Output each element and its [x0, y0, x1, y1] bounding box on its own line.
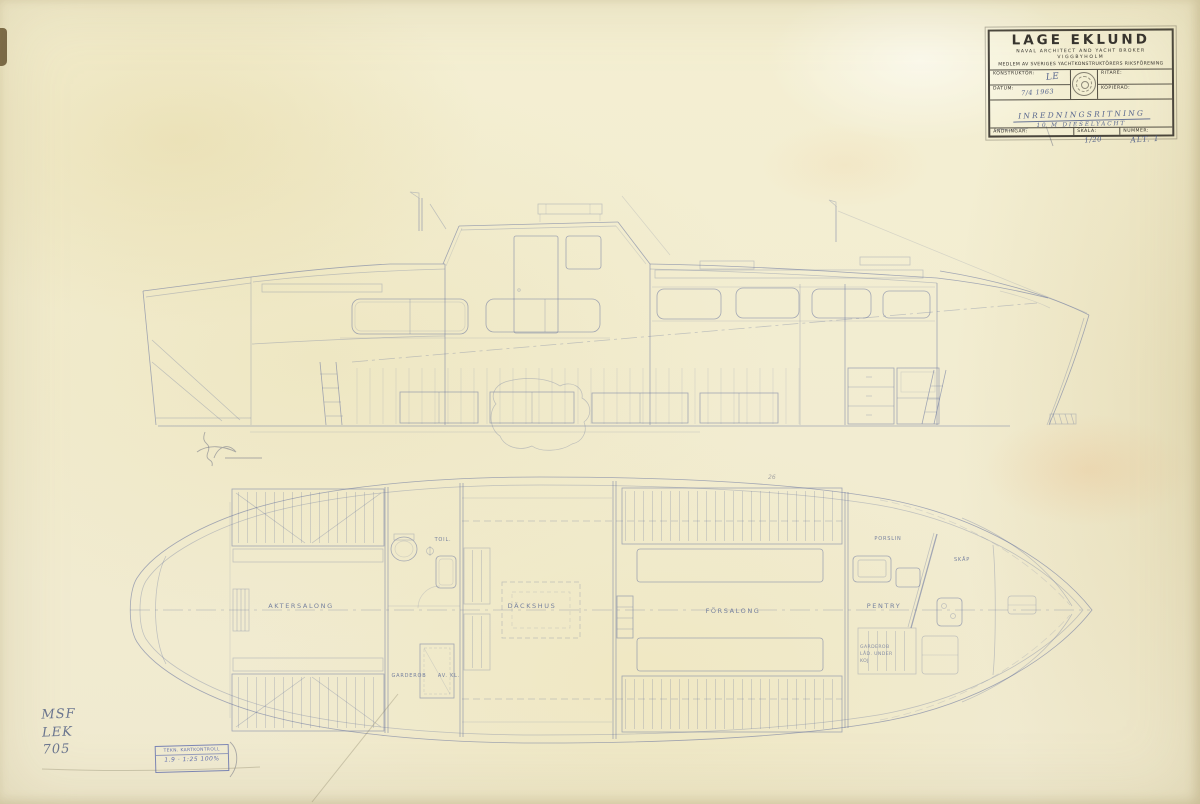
konstruktor-label: KONSTRUKTÖR:: [993, 71, 1035, 76]
membership-line: MEDLEM AV SVERIGES YACHTKONSTRUKTÖRERS R…: [990, 61, 1172, 67]
nummer-label: NUMMER:: [1123, 129, 1149, 134]
field-konstruktor: KONSTRUKTÖR: LE: [990, 70, 1070, 85]
plan-note-koj: GARDEROB LÅD. UNDER KOJ: [860, 645, 893, 666]
plan-note-line1: GARDEROB: [860, 645, 893, 652]
ritare-label: RITARE:: [1101, 71, 1122, 76]
fields-left-column: KONSTRUKTÖR: LE DATUM: 7/4 1963: [990, 70, 1071, 99]
plan-note-line2: LÅD. UNDER: [860, 652, 893, 659]
title-block-bottom-row: ÄNDRINGAR: SKALA: 1/20 NUMMER: ALT. 1: [990, 127, 1172, 135]
field-ritare: RITARE:: [1098, 69, 1172, 84]
company-location: VIGGBYHOLM: [990, 54, 1172, 60]
title-block-fields: KONSTRUKTÖR: LE DATUM: 7/4 1963 RITARE: …: [990, 69, 1172, 100]
plan-label-toil: TOIL.: [435, 537, 452, 543]
plan-label-forsalong: FÖRSALONG: [706, 607, 761, 615]
archive-pencil-notes: MSF LEK 705: [41, 705, 77, 759]
kopierad-label: KOPIERAD:: [1101, 86, 1130, 91]
field-kopierad: KOPIERAD:: [1098, 84, 1172, 98]
plan-label-porslin: PORSLIN: [874, 536, 901, 542]
field-nummer: NUMMER: ALT. 1: [1120, 127, 1172, 135]
association-seal-icon: [1072, 72, 1096, 96]
field-datum: DATUM: 7/4 1963: [990, 85, 1070, 99]
datum-value: 7/4 1963: [1021, 87, 1054, 97]
plan-view: [130, 477, 1092, 743]
fields-right-column: RITARE: KOPIERAD:: [1097, 69, 1172, 98]
plan-label-pentry: PENTRY: [867, 602, 902, 610]
field-andringar: ÄNDRINGAR:: [990, 128, 1074, 136]
drawing-title: INREDNINGSRITNING 10 M DIESELYACHT: [990, 99, 1172, 128]
plan-label-skap: SKÅP: [954, 557, 970, 563]
title-block: LAGE EKLUND NAVAL ARCHITECT AND YACHT BR…: [988, 28, 1175, 137]
scanned-blueprint-sheet: AKTERSALONG DÄCKSHUS FÖRSALONG PENTRY TO…: [0, 0, 1200, 804]
plan-label-garderob: GARDEROB: [391, 673, 426, 679]
fields-middle-column: [1071, 70, 1097, 99]
skala-label: SKALA:: [1077, 129, 1096, 134]
datum-label: DATUM:: [993, 87, 1014, 92]
plan-note-line3: KOJ: [860, 659, 893, 666]
plan-label-dackshus: DÄCKSHUS: [508, 602, 557, 610]
konstruktor-signature: LE: [1046, 71, 1061, 82]
company-name: LAGE EKLUND: [990, 32, 1172, 47]
field-skala: SKALA: 1/20: [1074, 127, 1120, 135]
andringar-label: ÄNDRINGAR:: [993, 129, 1027, 134]
pencil-note-line1: MSF: [41, 705, 76, 724]
elevation-view: [143, 192, 1089, 450]
pencil-mark-26: 26: [768, 474, 776, 481]
plan-label-aktersalong: AKTERSALONG: [268, 602, 334, 610]
title-block-header: LAGE EKLUND NAVAL ARCHITECT AND YACHT BR…: [990, 30, 1172, 70]
pencil-note-line3: 705: [42, 740, 77, 759]
pencil-note-line2: LEK: [42, 723, 77, 742]
skala-value: 1/20: [1084, 135, 1102, 144]
archive-control-stamp: TEKN. KARTKONTROLL 1.9 · 1:25 100%: [155, 744, 230, 773]
stamp-line2: 1.9 · 1:25 100%: [156, 754, 228, 764]
nummer-value: ALT. 1: [1130, 133, 1160, 144]
plan-label-avkl: AV. KL.: [438, 673, 460, 679]
